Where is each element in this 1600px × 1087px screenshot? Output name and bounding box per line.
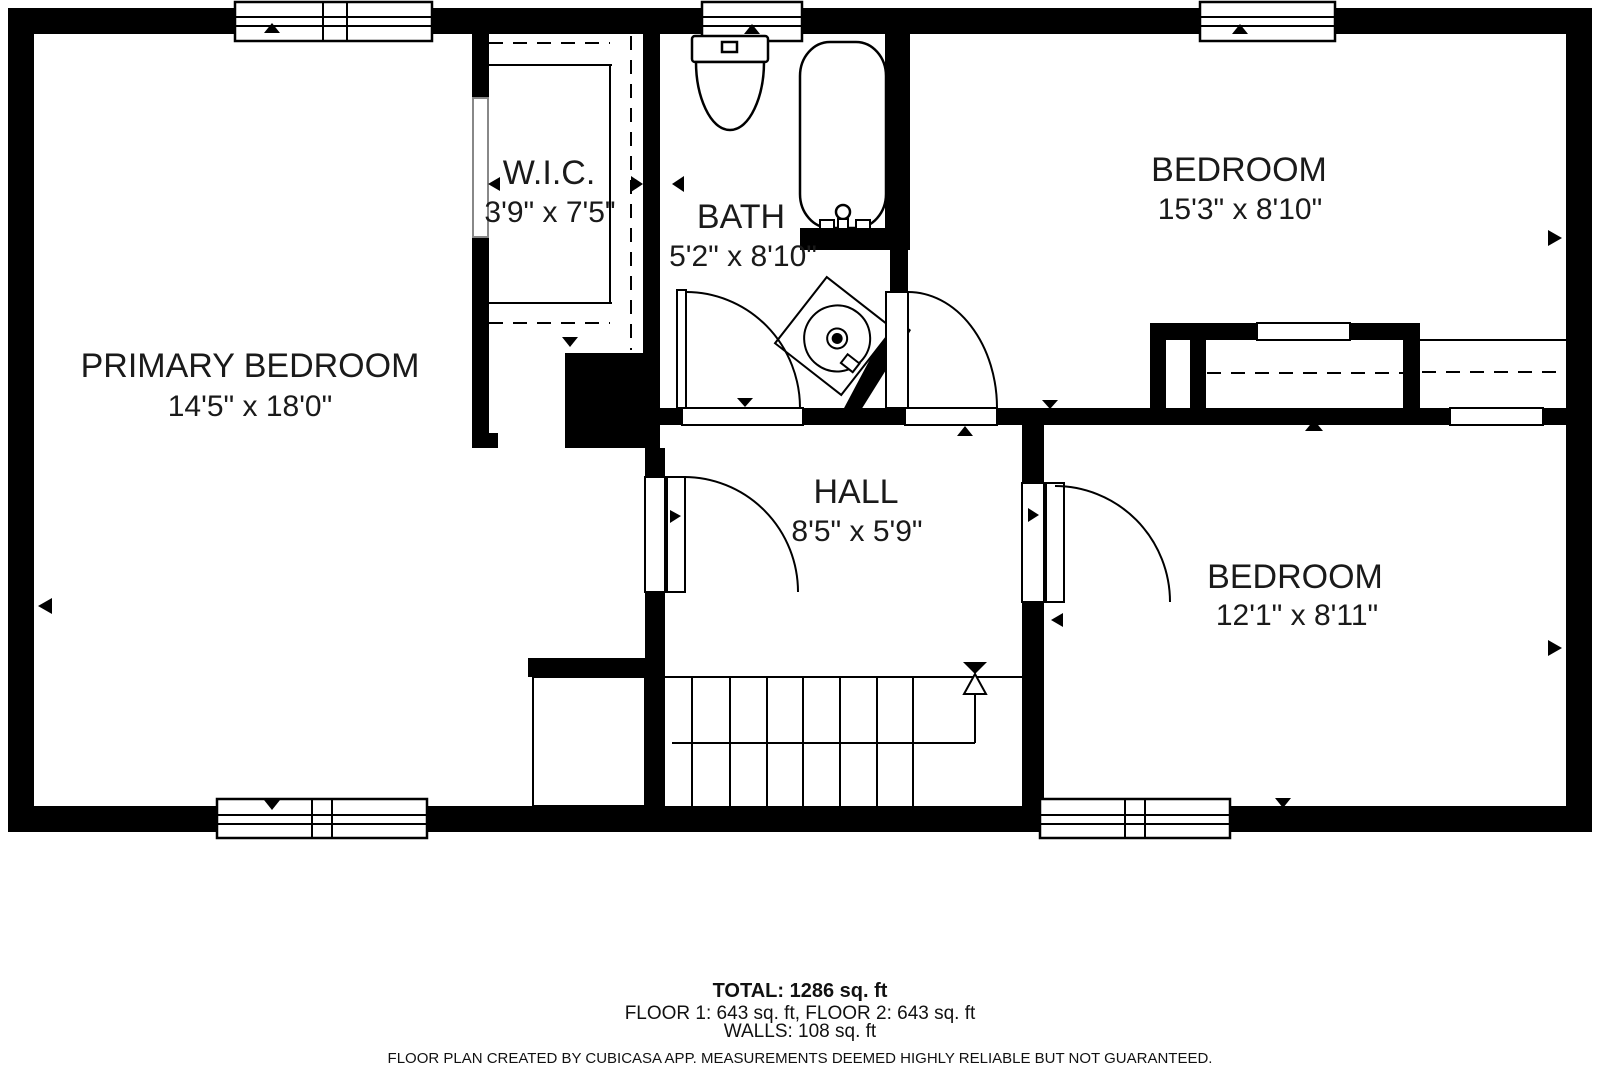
marker-wic-bath-left <box>631 176 643 192</box>
door-leaf-bath <box>677 290 686 408</box>
label-primary-bedroom: PRIMARY BEDROOM <box>81 347 420 385</box>
marker-wic-bath-right <box>672 176 684 192</box>
window-bedroom-bottom <box>1040 799 1230 838</box>
toilet-icon <box>692 36 768 130</box>
door-leaf-bedroom-tr <box>886 292 908 408</box>
stairs <box>533 662 1022 806</box>
door-arc-primary <box>684 477 798 592</box>
dims-wic: 3'9" x 7'5" <box>484 196 615 229</box>
room-labels: PRIMARY BEDROOM 14'5" x 18'0" W.I.C. 3'9… <box>81 151 1383 632</box>
window-primary-top <box>235 2 432 41</box>
label-wic: W.I.C. <box>503 154 596 192</box>
dims-hall: 8'5" x 5'9" <box>791 515 922 548</box>
marker-bedroom-tr-door <box>957 426 973 436</box>
floor-plan-drawing: PRIMARY BEDROOM 14'5" x 18'0" W.I.C. 3'9… <box>0 0 1600 1087</box>
wall-exterior-left <box>8 8 34 832</box>
door-arc-bedroom-tr <box>908 292 997 408</box>
footer-walls-area: WALLS: 108 sq. ft <box>0 1021 1600 1043</box>
sill-bedroom-tr-door <box>905 408 997 425</box>
bathtub-icon <box>800 42 886 229</box>
window-primary-bottom <box>217 799 427 838</box>
sill-primary-door <box>645 477 665 592</box>
footer-disclaimer: FLOOR PLAN CREATED BY CUBICASA APP. MEAS… <box>0 1050 1600 1067</box>
marker-right-wall-top <box>1548 230 1562 246</box>
marker-bedroom-br-door-bottom <box>1051 613 1063 627</box>
dims-primary-bedroom: 14'5" x 18'0" <box>168 390 333 423</box>
sill-closet-br-opening <box>1450 408 1543 425</box>
marker-right-wall-bottom <box>1548 640 1562 656</box>
dims-bedroom-top-right: 15'3" x 8'10" <box>1158 193 1323 226</box>
wall-exterior-right <box>1566 8 1592 832</box>
door-leaf-bedroom-br <box>1046 483 1064 602</box>
dims-bath: 5'2" x 8'10" <box>669 240 817 273</box>
sill-bedroom-br-door <box>1022 483 1044 602</box>
dims-bedroom-bottom-right: 12'1" x 8'11" <box>1216 599 1378 632</box>
door-arc-bedroom-br <box>1055 486 1170 602</box>
door-leaf-primary <box>667 477 685 592</box>
sill-nook-opening <box>498 433 565 448</box>
tub-faucet <box>836 205 850 219</box>
sill-closet-tr-opening <box>1257 323 1350 340</box>
label-bedroom-top-right: BEDROOM <box>1151 151 1327 189</box>
marker-left-wall <box>38 598 52 614</box>
chimney-block <box>565 353 660 448</box>
marker-wic-bottom <box>562 337 578 347</box>
label-bedroom-bottom-right: BEDROOM <box>1207 558 1383 596</box>
under-stair-closet <box>533 677 645 806</box>
toilet-flush-button <box>722 42 737 52</box>
floor-plan-page: { "plan": { "rooms": [ {"name": "PRIMARY… <box>0 0 1600 1087</box>
label-bath: BATH <box>697 198 785 236</box>
sill-bath-door <box>682 408 803 425</box>
label-hall: HALL <box>813 473 898 511</box>
marker-hall-corner <box>1042 400 1058 409</box>
marker-bath-door <box>737 398 753 407</box>
marker-wic-door <box>488 177 500 191</box>
window-bedroom-top <box>1200 2 1335 41</box>
footer-total-area: TOTAL: 1286 sq. ft <box>0 980 1600 1003</box>
